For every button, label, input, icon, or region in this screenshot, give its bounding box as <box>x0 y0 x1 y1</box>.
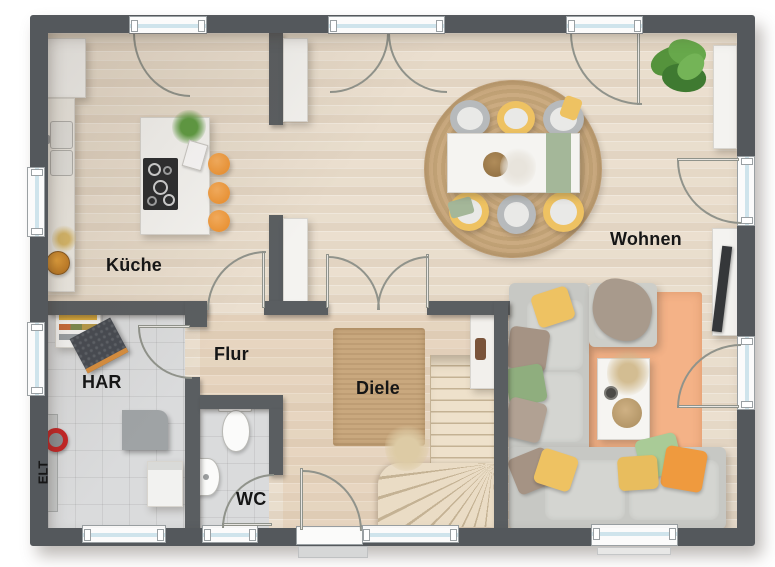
floor-plan: Küche Wohnen Flur Diele HAR WC ELT <box>0 0 775 567</box>
entrance-step <box>298 546 368 558</box>
room-label-flur: Flur <box>214 344 249 365</box>
window-living-bottom <box>591 524 678 546</box>
room-label-elt: ELT <box>35 461 50 485</box>
room-label-har: HAR <box>82 372 122 393</box>
kitchen-terrace-door-top <box>129 16 207 34</box>
room-label-wohnen: Wohnen <box>610 229 682 250</box>
room-label-wc: WC <box>236 489 266 510</box>
window-sill-outside <box>597 547 671 555</box>
window-kitchen-left <box>27 167 45 237</box>
room-label-diele: Diele <box>356 378 400 399</box>
window-har-bottom <box>82 525 166 543</box>
french-door-top <box>328 16 445 34</box>
room-label-kueche: Küche <box>106 255 162 276</box>
window-har-left <box>27 322 45 396</box>
terrace-door-top-right <box>566 16 643 34</box>
window-diele-bottom <box>361 525 459 543</box>
